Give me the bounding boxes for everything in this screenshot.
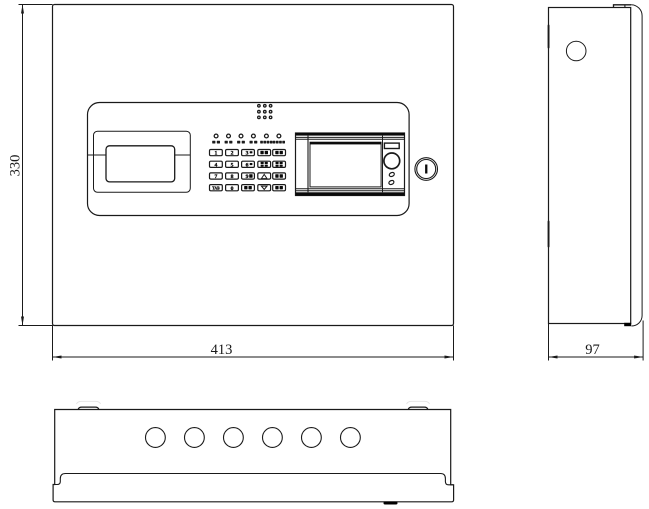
svg-text:8: 8 [231,174,234,180]
svg-text:0: 0 [231,186,234,192]
svg-text:6: 6 [246,162,249,168]
svg-text:5: 5 [231,162,234,168]
svg-text:9: 9 [246,174,249,180]
svg-text:7: 7 [214,174,217,180]
svg-text:413: 413 [211,342,233,358]
svg-text:330: 330 [8,155,24,177]
svg-text:4: 4 [214,162,217,168]
svg-text:2: 2 [231,151,234,157]
svg-text:3: 3 [246,151,249,157]
svg-text:1: 1 [214,151,217,157]
svg-text:97: 97 [585,342,600,358]
svg-text:TAB: TAB [212,187,220,191]
